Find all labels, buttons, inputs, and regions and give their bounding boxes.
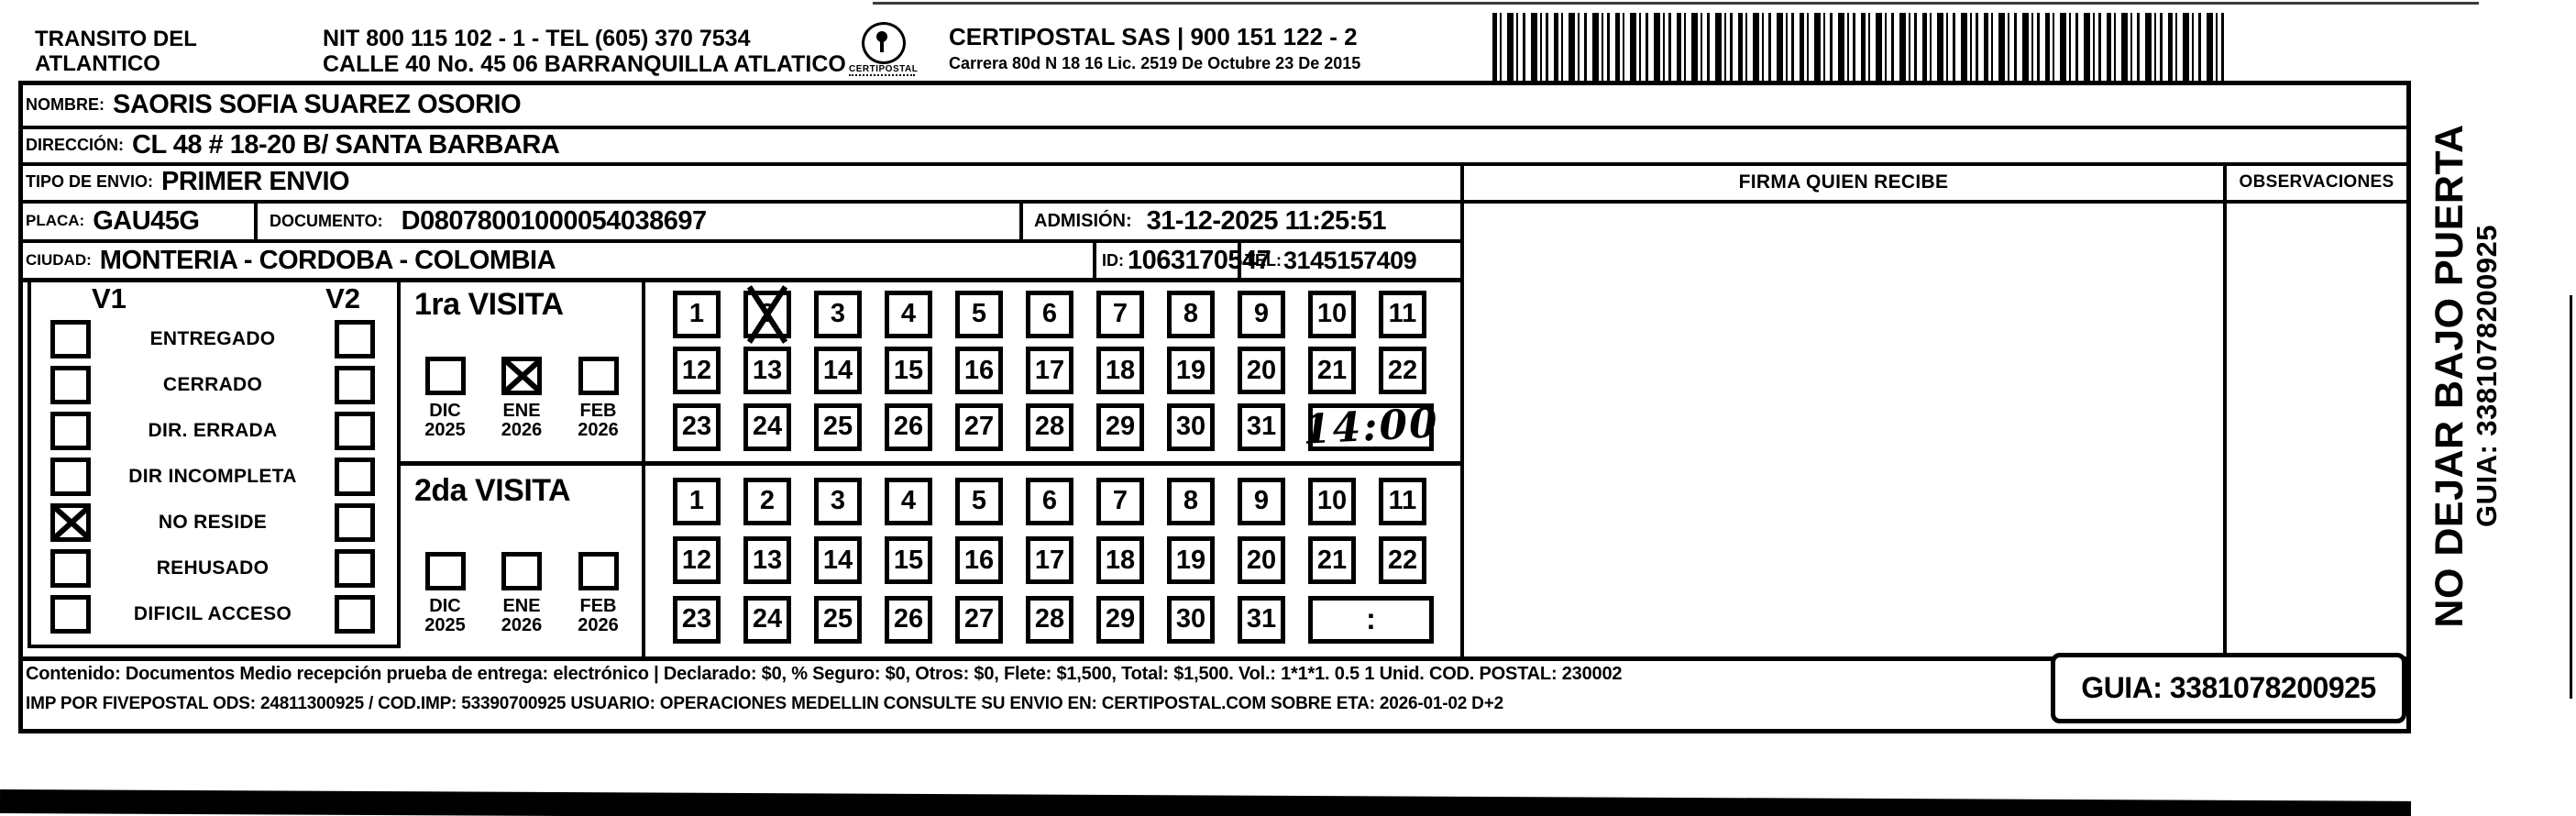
status-row: REHUSADO (31, 549, 397, 588)
month-name: FEB (578, 597, 619, 617)
status-row: DIR INCOMPLETA (31, 458, 397, 496)
day-cell-visit2-5[interactable]: 5 (955, 478, 1003, 525)
tipo-envio-value: PRIMER ENVIO (161, 167, 349, 197)
tel-cell: TEL: 3145157409 (1245, 242, 1416, 279)
day-cell-visit2-31[interactable]: 31 (1238, 596, 1285, 644)
status-row: CERRADO (31, 366, 397, 404)
day-cell-visit1-11[interactable]: 11 (1379, 291, 1426, 338)
tipo-envio-row: TIPO DE ENVIO: PRIMER ENVIO (26, 165, 349, 199)
checkbox-v2-6[interactable] (335, 595, 375, 634)
day-cell-visit1-2[interactable]: 2 (743, 291, 791, 338)
time-box-visit1[interactable]: 14:00 (1308, 403, 1434, 451)
day-cell-visit2-30[interactable]: 30 (1167, 596, 1215, 644)
status-row: DIFICIL ACCESO (31, 595, 397, 634)
shipper-nit: NIT 800 115 102 - 1 - TEL (605) 370 7534 (323, 26, 846, 51)
month-year: 2025 (424, 421, 466, 441)
day-cell-visit1-1[interactable]: 1 (673, 291, 721, 338)
day-cell-visit2-9[interactable]: 9 (1238, 478, 1285, 525)
status-label: DIR INCOMPLETA (91, 466, 335, 488)
month-checkbox-visit2-1[interactable] (501, 552, 542, 590)
admision-label: ADMISIÓN: (1034, 211, 1132, 232)
day-cell-visit1-25[interactable]: 25 (814, 403, 862, 451)
day-cell-visit1-16[interactable]: 16 (955, 347, 1003, 394)
guia-number-box: GUIA: 3381078200925 (2051, 653, 2406, 723)
day-cell-visit1-31[interactable]: 31 (1238, 403, 1285, 451)
month-year: 2026 (501, 616, 543, 636)
direccion-label: DIRECCIÓN: (26, 136, 124, 155)
day-cell-visit2-18[interactable]: 18 (1096, 536, 1144, 584)
time-colon-placeholder: : (1366, 602, 1376, 636)
month-label: ENE2026 (501, 597, 543, 636)
checkbox-v1-0[interactable] (50, 320, 91, 358)
day-row: 1213141516171819202122 (645, 536, 1460, 584)
documento-cell: DOCUMENTO: D08078001000054038697 (270, 203, 707, 239)
day-cell-visit2-19[interactable]: 19 (1167, 536, 1215, 584)
day-cell-visit1-5[interactable]: 5 (955, 291, 1003, 338)
direccion-row: DIRECCIÓN: CL 48 # 18-20 B/ SANTA BARBAR… (26, 128, 559, 161)
day-cell-visit1-29[interactable]: 29 (1096, 403, 1144, 451)
nombre-label: NOMBRE: (26, 95, 105, 115)
day-cell-visit1-9[interactable]: 9 (1238, 291, 1285, 338)
status-label: CERRADO (91, 374, 335, 396)
day-cell-visit2-7[interactable]: 7 (1096, 478, 1144, 525)
observaciones-header: OBSERVACIONES (2227, 165, 2406, 199)
day-cell-visit2-10[interactable]: 10 (1308, 478, 1356, 525)
day-row: 23242526272829303114:00 (645, 403, 1460, 451)
status-label: REHUSADO (91, 557, 335, 579)
visit1-title: 1ra VISITA (414, 287, 642, 323)
day-cell-visit2-6[interactable]: 6 (1026, 478, 1073, 525)
day-cell-visit1-22[interactable]: 22 (1379, 347, 1426, 394)
day-cell-visit2-14[interactable]: 14 (814, 536, 862, 584)
day-cell-visit1-3[interactable]: 3 (814, 291, 862, 338)
nombre-value: SAORIS SOFIA SUAREZ OSORIO (113, 90, 521, 120)
delivery-form-scan: TRANSITO DEL ATLANTICO NIT 800 115 102 -… (0, 0, 2576, 816)
day-cell-visit2-17[interactable]: 17 (1026, 536, 1073, 584)
checkbox-v1-1[interactable] (50, 366, 91, 404)
month-item: ENE2026 (489, 552, 555, 636)
day-cell-visit1-13[interactable]: 13 (743, 347, 791, 394)
admision-value: 31-12-2025 11:25:51 (1147, 206, 1386, 237)
checkbox-v1-6[interactable] (50, 595, 91, 634)
scan-edge-artifact-top (873, 2, 2479, 5)
day-cell-visit2-4[interactable]: 4 (885, 478, 932, 525)
status-row: DIR. ERRADA (31, 412, 397, 450)
visit2-day-grid: 1234567891011121314151617181920212223242… (645, 466, 1460, 655)
month-item: FEB2026 (566, 552, 632, 636)
placa-value: GAU45G (93, 206, 199, 237)
visit1-day-grid: 1234567891011121314151617181920212223242… (645, 281, 1460, 459)
documento-value: D08078001000054038697 (402, 206, 707, 237)
day-cell-visit1-7[interactable]: 7 (1096, 291, 1144, 338)
shipper-name: TRANSITO DEL ATLANTICO (35, 28, 197, 77)
checkbox-v1-4[interactable] (50, 503, 91, 542)
v2-header: V2 (325, 282, 360, 315)
day-cell-visit1-23[interactable]: 23 (673, 403, 721, 451)
day-cell-visit2-27[interactable]: 27 (955, 596, 1003, 644)
month-label: DIC2025 (424, 402, 466, 441)
side-note: NO DEJAR BAJO PUERTA GUIA: 3381078200925 (2393, 66, 2539, 686)
placa-cell: PLACA: GAU45G (26, 203, 199, 239)
checkbox-v1-5[interactable] (50, 549, 91, 588)
firma-header: FIRMA QUIEN RECIBE (1464, 165, 2223, 199)
firma-signature-area (1464, 204, 2219, 653)
admision-cell: ADMISIÓN: 31-12-2025 11:25:51 (1034, 203, 1386, 239)
certipostal-logo-caption: CERTIPOSTAL (849, 64, 915, 76)
checkbox-v2-3[interactable] (335, 458, 375, 496)
month-name: ENE (501, 597, 543, 617)
day-cell-visit2-24[interactable]: 24 (743, 596, 791, 644)
checkbox-v2-1[interactable] (335, 366, 375, 404)
visit1-months: DIC2025ENE2026FEB2026 (402, 357, 642, 441)
day-cell-visit2-8[interactable]: 8 (1167, 478, 1215, 525)
day-cell-visit1-14[interactable]: 14 (814, 347, 862, 394)
placa-label: PLACA: (26, 212, 84, 230)
footer-content-line: Contenido: Documentos Medio recepción pr… (26, 664, 1622, 685)
month-name: DIC (424, 597, 466, 617)
day-cell-visit1-28[interactable]: 28 (1026, 403, 1073, 451)
month-year: 2025 (424, 616, 466, 636)
checkbox-v2-2[interactable] (335, 412, 375, 450)
month-label: FEB2026 (578, 597, 619, 636)
day-cell-visit1-15[interactable]: 15 (885, 347, 932, 394)
month-checkbox-visit1-2[interactable] (578, 357, 619, 395)
status-row: NO RESIDE (31, 503, 397, 542)
day-cell-visit1-17[interactable]: 17 (1026, 347, 1073, 394)
day-cell-visit1-12[interactable]: 12 (673, 347, 721, 394)
status-rows: ENTREGADOCERRADODIR. ERRADADIR INCOMPLET… (31, 313, 397, 641)
month-name: DIC (424, 402, 466, 422)
month-item: ENE2026 (489, 357, 555, 441)
documento-label: DOCUMENTO: (270, 212, 383, 231)
day-cell-visit2-2[interactable]: 2 (743, 478, 791, 525)
day-cell-visit1-4[interactable]: 4 (885, 291, 932, 338)
checkbox-v2-4[interactable] (335, 503, 375, 542)
observaciones-area (2227, 204, 2403, 653)
shipper-name-line1: TRANSITO DEL (35, 28, 197, 52)
checkbox-v1-2[interactable] (50, 412, 91, 450)
day-cell-visit2-20[interactable]: 20 (1238, 536, 1285, 584)
shipper-address: CALLE 40 No. 45 06 BARRANQUILLA ATLATICO (323, 51, 846, 77)
month-label: DIC2025 (424, 597, 466, 636)
day-cell-visit2-15[interactable]: 15 (885, 536, 932, 584)
ciudad-cell: CIUDAD: MONTERIA - CORDOBA - COLOMBIA (26, 242, 556, 279)
day-row: 1234567891011 (645, 478, 1460, 525)
day-cell-visit2-23[interactable]: 23 (673, 596, 721, 644)
day-cell-visit2-21[interactable]: 21 (1308, 536, 1356, 584)
day-row: 1213141516171819202122 (645, 347, 1460, 394)
day-cell-visit1-27[interactable]: 27 (955, 403, 1003, 451)
visit1-header-section: 1ra VISITA DIC2025ENE2026FEB2026 (402, 280, 642, 461)
month-year: 2026 (501, 421, 543, 441)
checkbox-v2-0[interactable] (335, 320, 375, 358)
month-item: FEB2026 (566, 357, 632, 441)
day-cell-visit1-21[interactable]: 21 (1308, 347, 1356, 394)
day-cell-visit2-22[interactable]: 22 (1379, 536, 1426, 584)
visit2-title: 2da VISITA (414, 473, 642, 509)
month-item: DIC2025 (413, 552, 479, 636)
footer-imp-line: IMP POR FIVEPOSTAL ODS: 24811300925 / CO… (26, 694, 1503, 714)
scan-edge-bottom-bar (0, 789, 2411, 816)
status-label: DIR. ERRADA (91, 420, 335, 442)
visit2-months: DIC2025ENE2026FEB2026 (402, 552, 642, 636)
day-cell-visit2-1[interactable]: 1 (673, 478, 721, 525)
day-cell-visit1-8[interactable]: 8 (1167, 291, 1215, 338)
day-cell-visit2-13[interactable]: 13 (743, 536, 791, 584)
month-name: FEB (578, 402, 619, 422)
month-checkbox-visit1-1[interactable] (501, 357, 542, 395)
v1-header: V1 (92, 282, 127, 315)
day-cell-visit2-25[interactable]: 25 (814, 596, 862, 644)
tel-label: TEL: (1245, 251, 1282, 270)
status-row: ENTREGADO (31, 320, 397, 358)
handwritten-time: 14:00 (1302, 403, 1440, 451)
day-row: 1234567891011 (645, 291, 1460, 338)
day-row: 232425262728293031: (645, 596, 1460, 644)
day-cell-visit2-11[interactable]: 11 (1379, 478, 1426, 525)
shipper-details: NIT 800 115 102 - 1 - TEL (605) 370 7534… (323, 26, 846, 77)
month-name: ENE (501, 402, 543, 422)
tracking-barcode (1492, 13, 2226, 84)
nombre-row: NOMBRE: SAORIS SOFIA SUAREZ OSORIO (26, 84, 521, 125)
day-cell-visit2-3[interactable]: 3 (814, 478, 862, 525)
status-label: DIFICIL ACCESO (91, 603, 335, 625)
day-cell-visit2-28[interactable]: 28 (1026, 596, 1073, 644)
side-guia-text: GUIA: 3381078200925 (2471, 225, 2504, 527)
day-cell-visit1-18[interactable]: 18 (1096, 347, 1144, 394)
month-item: DIC2025 (413, 357, 479, 441)
month-year: 2026 (578, 421, 619, 441)
tel-value: 3145157409 (1283, 247, 1416, 275)
day-cell-visit1-20[interactable]: 20 (1238, 347, 1285, 394)
month-year: 2026 (578, 616, 619, 636)
ciudad-label: CIUDAD: (26, 251, 92, 270)
certipostal-logo-icon (862, 22, 906, 64)
checkbox-v1-3[interactable] (50, 458, 91, 496)
status-label: NO RESIDE (91, 512, 335, 534)
day-cell-visit1-30[interactable]: 30 (1167, 403, 1215, 451)
day-cell-visit1-26[interactable]: 26 (885, 403, 932, 451)
day-cell-visit2-12[interactable]: 12 (673, 536, 721, 584)
visit2-header-section: 2da VISITA DIC2025ENE2026FEB2026 (402, 466, 642, 656)
delivery-status-panel: V1 V2 ENTREGADOCERRADODIR. ERRADADIR INC… (28, 278, 401, 648)
status-label: ENTREGADO (91, 328, 335, 350)
month-checkbox-visit2-2[interactable] (578, 552, 619, 590)
scan-edge-artifact-right (2570, 295, 2572, 699)
day-cell-visit1-24[interactable]: 24 (743, 403, 791, 451)
operator-address: Carrera 80d N 18 16 Lic. 2519 De Octubre… (949, 54, 1360, 72)
month-checkbox-visit2-0[interactable] (425, 552, 466, 590)
time-box-visit2[interactable]: : (1308, 596, 1434, 644)
id-label: ID: (1102, 251, 1124, 270)
day-cell-visit2-29[interactable]: 29 (1096, 596, 1144, 644)
day-cell-visit2-26[interactable]: 26 (885, 596, 932, 644)
month-label: FEB2026 (578, 402, 619, 441)
operator-details: CERTIPOSTAL SAS | 900 151 122 - 2 Carrer… (949, 24, 1360, 72)
day-cell-visit2-16[interactable]: 16 (955, 536, 1003, 584)
day-cell-visit1-6[interactable]: 6 (1026, 291, 1073, 338)
shipper-name-line2: ATLANTICO (35, 52, 197, 77)
checkbox-v2-5[interactable] (335, 549, 375, 588)
operator-name: CERTIPOSTAL SAS | 900 151 122 - 2 (949, 24, 1360, 50)
ciudad-value: MONTERIA - CORDOBA - COLOMBIA (100, 246, 556, 276)
day-cell-visit1-19[interactable]: 19 (1167, 347, 1215, 394)
month-label: ENE2026 (501, 402, 543, 441)
tipo-envio-label: TIPO DE ENVIO: (26, 172, 153, 192)
side-warning-text: NO DEJAR BAJO PUERTA (2429, 124, 2471, 627)
day-cell-visit1-10[interactable]: 10 (1308, 291, 1356, 338)
direccion-value: CL 48 # 18-20 B/ SANTA BARBARA (132, 130, 559, 160)
month-checkbox-visit1-0[interactable] (425, 357, 466, 395)
